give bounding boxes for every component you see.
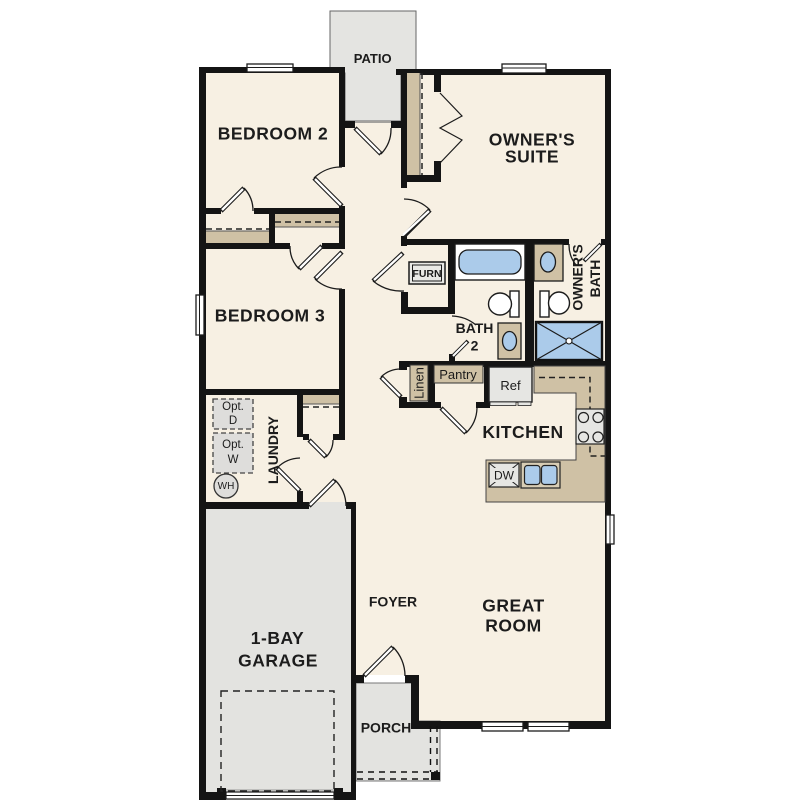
svg-text:WH: WH <box>218 481 235 492</box>
svg-text:BATH: BATH <box>456 320 494 336</box>
svg-text:BATH: BATH <box>587 260 603 298</box>
svg-text:LAUNDRY: LAUNDRY <box>265 415 281 484</box>
svg-text:ROOM: ROOM <box>485 616 541 636</box>
svg-text:FURN: FURN <box>412 268 441 280</box>
svg-text:Ref: Ref <box>500 378 521 393</box>
svg-text:DW: DW <box>494 469 515 483</box>
svg-text:SUITE: SUITE <box>505 147 559 167</box>
svg-text:2: 2 <box>471 338 479 354</box>
svg-text:1-BAY: 1-BAY <box>251 628 304 648</box>
svg-text:BEDROOM 3: BEDROOM 3 <box>215 306 325 326</box>
svg-text:KITCHEN: KITCHEN <box>482 422 563 442</box>
svg-text:FOYER: FOYER <box>369 594 417 610</box>
svg-text:BEDROOM 2: BEDROOM 2 <box>218 124 328 144</box>
svg-text:OWNER'S: OWNER'S <box>570 244 586 310</box>
svg-text:PATIO: PATIO <box>354 51 392 66</box>
svg-text:Opt.: Opt. <box>222 439 244 451</box>
svg-text:PORCH: PORCH <box>361 720 412 736</box>
svg-text:W: W <box>228 454 239 466</box>
svg-text:Opt.: Opt. <box>222 401 244 413</box>
svg-text:D: D <box>229 415 237 427</box>
svg-text:GARAGE: GARAGE <box>238 651 318 671</box>
svg-text:Pantry: Pantry <box>439 367 477 382</box>
svg-text:Linen: Linen <box>412 367 427 399</box>
svg-text:GREAT: GREAT <box>482 596 544 616</box>
